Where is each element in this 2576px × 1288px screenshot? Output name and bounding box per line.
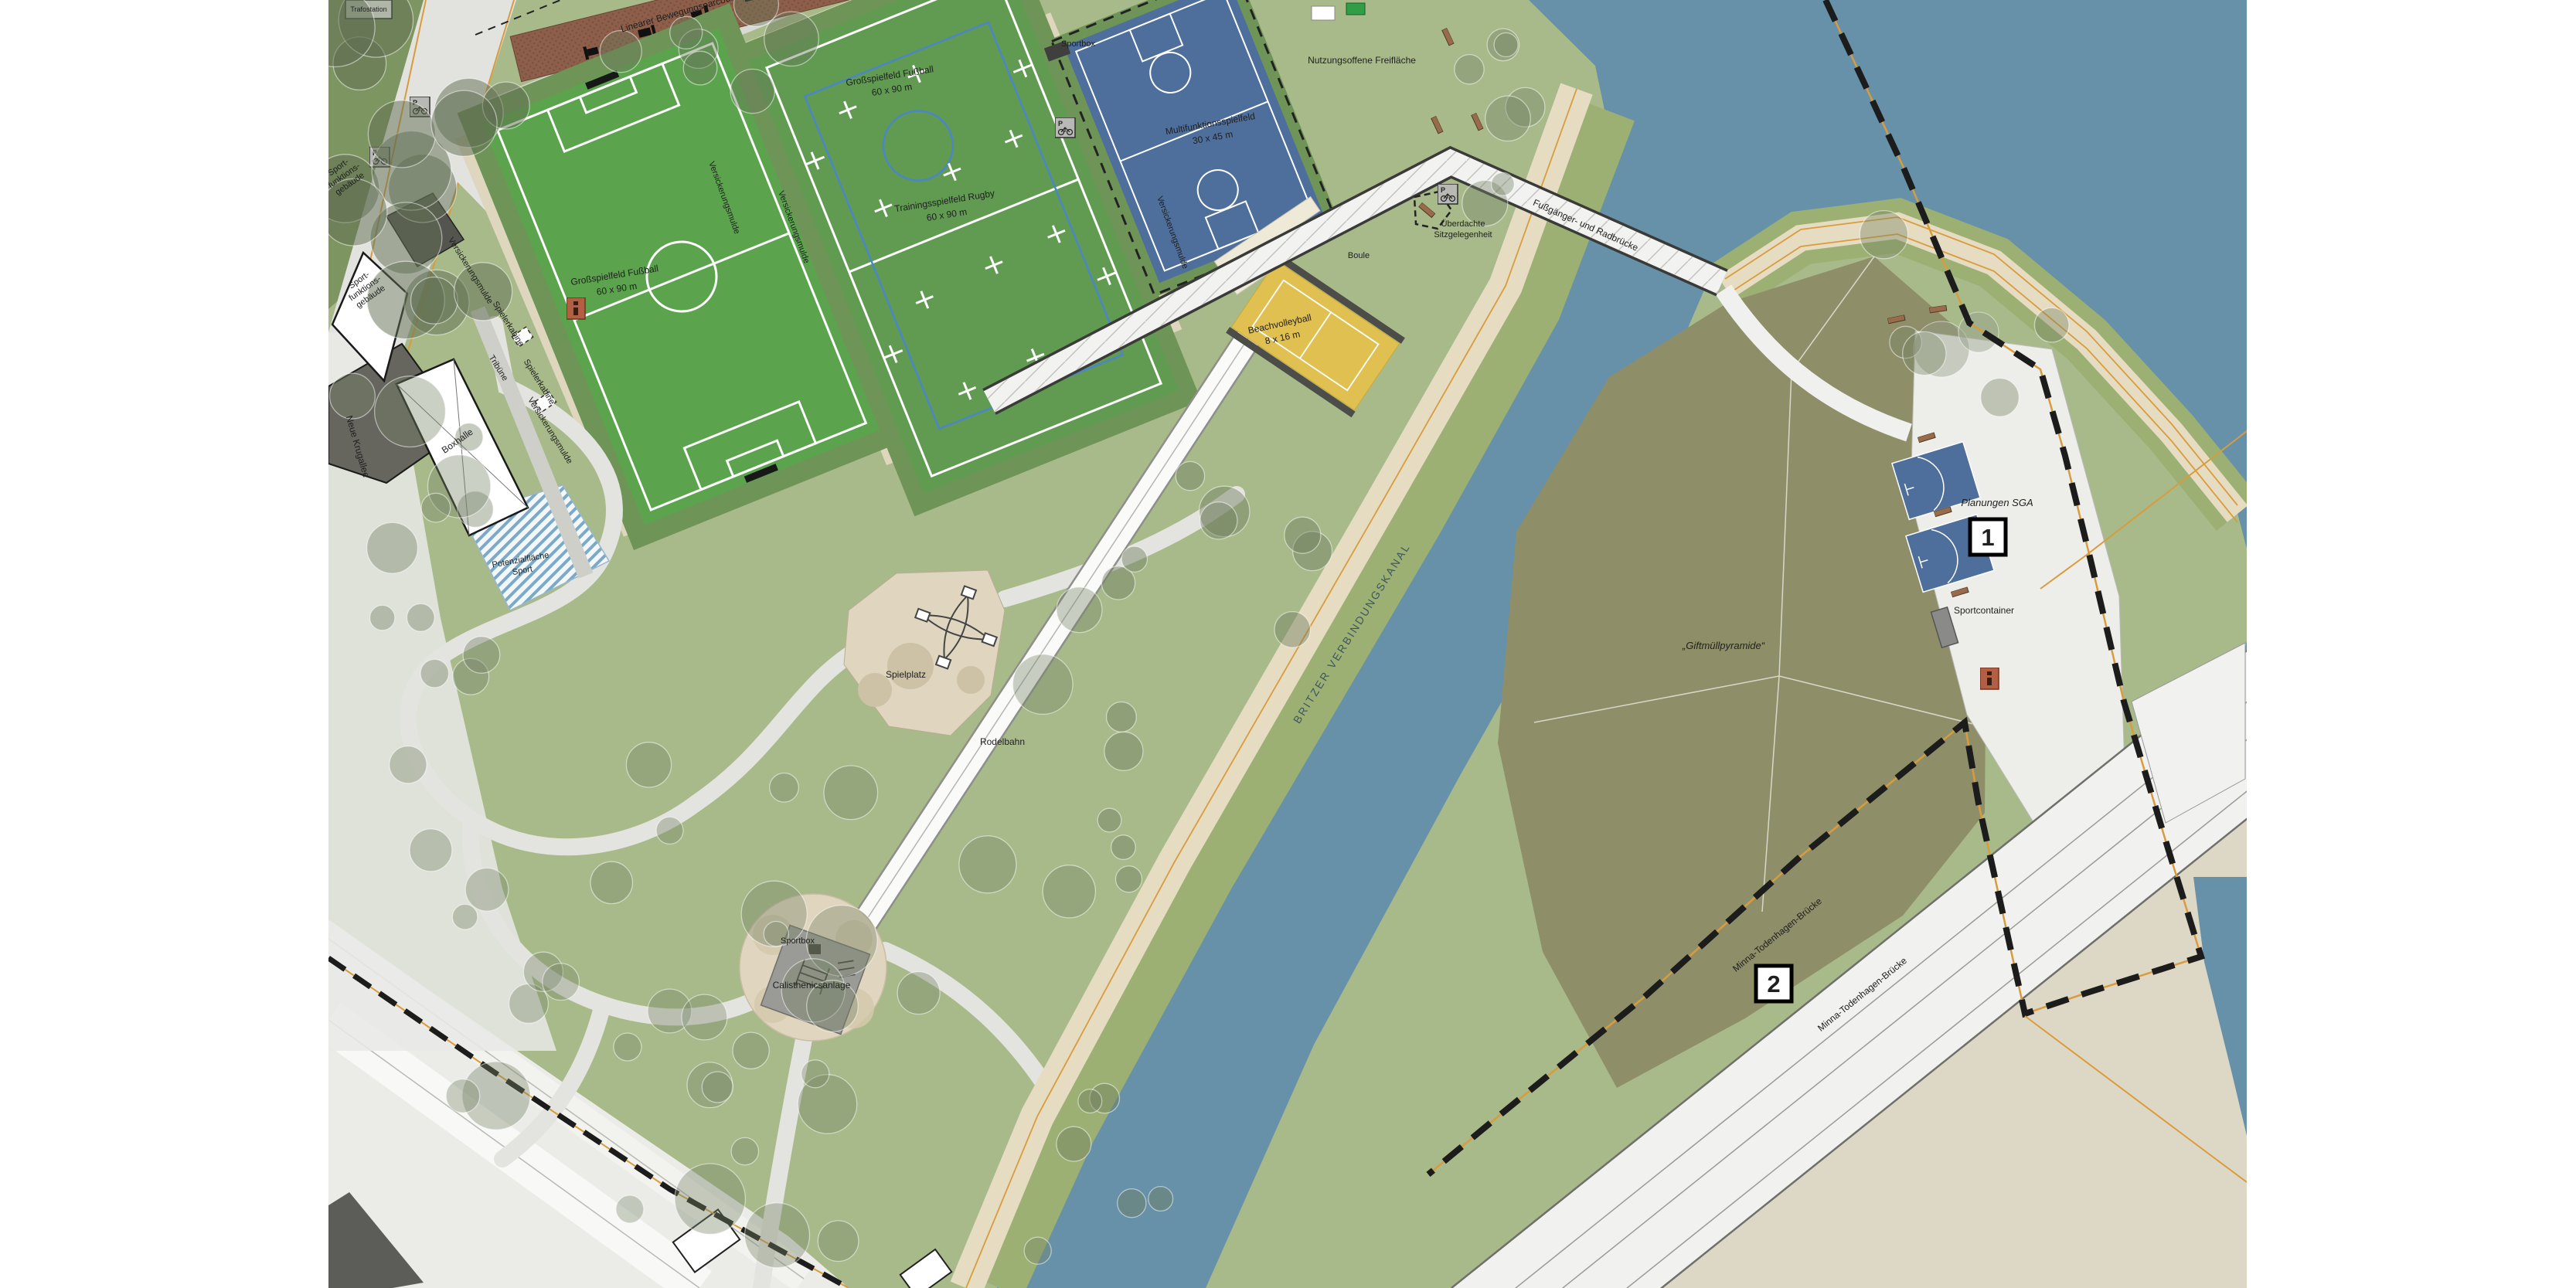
label-nutzungsoffene-freiflaeche: Nutzungsoffene Freifläche <box>1308 55 1416 66</box>
tree <box>824 766 878 820</box>
tree <box>1485 96 1530 141</box>
label-calisthenicsanlage: Calisthenicsanlage <box>773 980 851 991</box>
tree <box>616 1195 644 1223</box>
label-planungen-sga: Planungen SGA <box>1961 497 2033 508</box>
page-margin-left <box>0 0 328 1288</box>
tree <box>897 972 940 1014</box>
label-spielplatz: Spielplatz <box>886 669 926 680</box>
label-rodelbahn: Rodelbahn <box>980 736 1025 747</box>
tree <box>1012 654 1073 715</box>
tree <box>465 868 509 912</box>
table-tennis-icon <box>1346 3 1365 15</box>
tree <box>626 743 671 787</box>
plan-marker-2: 2 <box>1756 966 1792 1001</box>
tree <box>1494 33 1518 57</box>
tree <box>1285 517 1321 553</box>
tree <box>818 1221 859 1262</box>
tree <box>770 773 799 803</box>
tree <box>801 1060 829 1088</box>
tree <box>375 376 446 447</box>
small-structure <box>1312 6 1335 20</box>
tree <box>745 1203 810 1268</box>
tree <box>1104 732 1143 770</box>
tree <box>370 605 395 630</box>
tree <box>1121 546 1147 572</box>
tree <box>1200 502 1237 539</box>
tree <box>411 277 458 325</box>
tree <box>368 100 435 168</box>
site-plan-page: P <box>0 0 2576 1288</box>
label-trafostation: Trafostation <box>350 5 386 13</box>
plan-marker-1: 1 <box>1970 519 2006 555</box>
tree <box>702 1072 733 1103</box>
tree <box>1118 1189 1146 1218</box>
label-giftmuellpyramide: „Giftmüllpyramide“ <box>1682 640 1765 651</box>
marker-number: 2 <box>1767 970 1780 997</box>
tree <box>420 659 449 688</box>
tree <box>731 1137 758 1164</box>
tree <box>1860 211 1907 259</box>
tree <box>1078 1089 1102 1113</box>
marker-number: 1 <box>1981 524 1994 551</box>
tree <box>1455 55 1484 84</box>
site-plan-map: P <box>0 0 2576 1288</box>
tree <box>1148 1187 1173 1212</box>
tree <box>670 16 703 49</box>
tree <box>367 522 418 573</box>
tree <box>463 637 500 674</box>
tree <box>1116 866 1142 892</box>
label-sportbox-south: Sportbox <box>781 936 815 946</box>
tree <box>1176 461 1204 490</box>
tree <box>1107 702 1137 732</box>
label-line: Sitzgelegenheit <box>1434 230 1492 240</box>
label-sportcontainer: Sportcontainer <box>1954 605 2014 616</box>
tree <box>959 836 1016 893</box>
page-margin-right <box>2247 0 2576 1288</box>
tree <box>675 1164 745 1234</box>
label-line: Überdachte <box>1441 219 1485 229</box>
tree <box>330 373 376 419</box>
tree <box>1057 1127 1091 1161</box>
tree <box>1097 808 1121 832</box>
tree <box>764 12 818 66</box>
tree <box>1111 835 1136 860</box>
tree <box>410 829 452 872</box>
tree <box>543 963 580 1001</box>
tree <box>683 51 717 85</box>
tree <box>1043 865 1095 918</box>
tree <box>656 817 683 844</box>
tree <box>390 746 427 783</box>
tree <box>421 493 451 522</box>
tree <box>730 70 774 114</box>
tree <box>682 994 727 1040</box>
tree <box>446 1079 480 1113</box>
tree <box>452 904 478 929</box>
tree <box>1057 587 1102 633</box>
tree <box>2034 308 2069 342</box>
label-sportbox-north: Sportbox <box>1061 39 1096 49</box>
tree <box>1492 172 1515 195</box>
tree <box>431 90 497 156</box>
tree <box>733 1032 769 1069</box>
tree <box>614 1033 641 1061</box>
label-boule: Boule <box>1348 251 1370 260</box>
tree <box>1903 331 1946 375</box>
tree <box>600 31 641 73</box>
tree <box>1024 1237 1051 1264</box>
tree <box>1274 612 1310 647</box>
tree <box>1981 379 2020 417</box>
tree <box>407 603 434 631</box>
tree <box>590 861 632 903</box>
